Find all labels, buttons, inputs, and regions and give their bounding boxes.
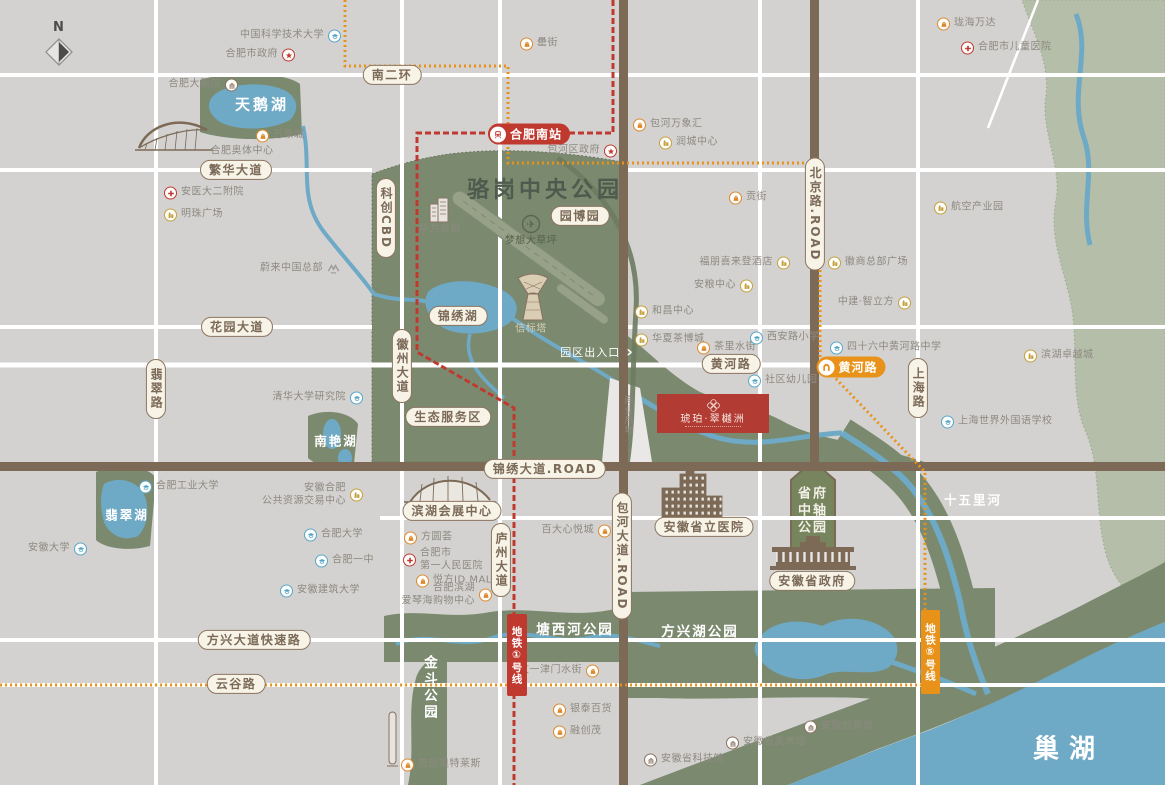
project-name: 琥珀·翠樾洲 bbox=[680, 414, 745, 425]
poi-item: 安徽合肥 公共资源交易中心 bbox=[262, 483, 363, 508]
landmark-label: 信标塔 bbox=[515, 320, 547, 335]
compass: N bbox=[42, 20, 76, 69]
poi-item: 合肥市儿童医院 bbox=[961, 42, 1052, 55]
road-label: 云谷路 bbox=[207, 674, 266, 694]
poi-item: 茶里水街 bbox=[697, 342, 756, 355]
poi-label: 安徽大学 bbox=[28, 543, 70, 556]
poi-item: 中国科学技术大学 bbox=[240, 30, 341, 43]
poi-label: 安徽省科技馆 bbox=[661, 754, 724, 767]
poi-label: 上海世界外国语学校 bbox=[958, 416, 1053, 429]
poi-label: 合肥工业大学 bbox=[156, 481, 219, 494]
poi-label: 航空产业园 bbox=[951, 202, 1004, 215]
mall-icon bbox=[586, 665, 599, 678]
landmark-label: 华为总部 bbox=[419, 220, 461, 235]
gov-icon bbox=[604, 145, 617, 158]
poi-label: 润城中心 bbox=[676, 137, 718, 150]
mall-icon bbox=[937, 18, 950, 31]
area-label: 方兴湖公园 bbox=[661, 620, 739, 640]
mall-icon bbox=[697, 342, 710, 355]
poi-item: 罍街 bbox=[520, 38, 558, 51]
poi-item: 航空产业园 bbox=[934, 202, 1004, 215]
poi-item: 安徽大学 bbox=[28, 543, 87, 556]
mall-icon bbox=[404, 532, 417, 545]
poi-item: 西安路小学 bbox=[750, 332, 820, 345]
poi-item: 合肥滨湖 爱琴海购物中心 bbox=[402, 583, 493, 608]
mall-icon bbox=[479, 589, 492, 602]
poi-item: 和昌中心 bbox=[635, 306, 694, 319]
building-icon bbox=[898, 297, 911, 310]
mall-icon bbox=[520, 38, 533, 51]
school-icon bbox=[304, 529, 317, 542]
school-icon bbox=[74, 543, 87, 556]
station-badge-hefei-south: 合肥南站 bbox=[488, 124, 570, 145]
mall-icon bbox=[256, 130, 269, 143]
hospital-icon bbox=[403, 554, 416, 567]
mall-icon bbox=[401, 759, 414, 772]
road-label: 方兴大道快速路 bbox=[198, 630, 311, 650]
building-icon bbox=[934, 202, 947, 215]
road-label: 园博园 bbox=[551, 206, 610, 226]
poi-item: 首创奥特莱斯 bbox=[401, 759, 481, 772]
station-label: 合肥南站 bbox=[510, 126, 562, 143]
commercial-plot-label: 商业用地 bbox=[622, 395, 635, 435]
poi-item: 清华大学研究院 bbox=[273, 392, 364, 405]
poi-item: 明珠广场 bbox=[164, 209, 223, 222]
poi-item: 合肥大剧院 bbox=[169, 79, 239, 92]
road-label: 黄河路 bbox=[702, 354, 761, 374]
poi-label: 合肥市 第一人民医院 bbox=[420, 548, 483, 573]
poi-label: 清华大学研究院 bbox=[273, 392, 347, 405]
road-label: 繁华大道 bbox=[200, 160, 272, 180]
metro-line1-band: 地铁①号线 bbox=[507, 614, 527, 696]
road-label: 上海路 bbox=[908, 358, 928, 418]
mall-icon bbox=[598, 525, 611, 538]
location-map: ✈ N 骆岗中央公园 园区出入口 › 商业用地 省府 中轴 公园 地铁①号线 地… bbox=[0, 0, 1165, 785]
culture-icon bbox=[804, 721, 817, 734]
poi-label: 蔚来中国总部 bbox=[260, 263, 323, 276]
poi-label: 合肥市政府 bbox=[226, 49, 279, 62]
school-icon bbox=[328, 30, 341, 43]
poi-item: 四十六中黄河路中学 bbox=[830, 342, 942, 355]
area-label: 十五里河 bbox=[944, 490, 1002, 509]
road-label: 花园大道 bbox=[201, 317, 273, 337]
school-icon bbox=[941, 416, 954, 429]
building-icon bbox=[1024, 350, 1037, 363]
building-icon bbox=[740, 280, 753, 293]
compass-north-label: N bbox=[53, 20, 65, 35]
school-icon bbox=[350, 392, 363, 405]
poi-item: 润城中心 bbox=[659, 137, 718, 150]
poi-item: 安医大二附院 bbox=[164, 187, 244, 200]
metro-icon bbox=[818, 359, 834, 375]
poi-item: 合肥一中 bbox=[315, 555, 374, 568]
poi-label: 四十六中黄河路中学 bbox=[847, 342, 942, 355]
poi-label: 社区幼儿园 bbox=[765, 375, 818, 388]
poi-item: 合肥工业大学 bbox=[139, 481, 219, 494]
area-label: 南艳湖 bbox=[314, 431, 358, 450]
school-icon bbox=[315, 555, 328, 568]
poi-label: 徽商总部广场 bbox=[845, 257, 908, 270]
poi-label: 福朋喜来登酒店 bbox=[700, 257, 774, 270]
project-badge: 琥珀·翠樾洲 bbox=[657, 394, 769, 433]
poi-label: 融创茂 bbox=[570, 726, 602, 739]
area-label: 塘西河公园 bbox=[536, 618, 614, 638]
road-label: 科创CBD bbox=[376, 178, 396, 258]
building-icon bbox=[828, 257, 841, 270]
gov-icon bbox=[282, 49, 295, 62]
poi-label: 中国科学技术大学 bbox=[240, 30, 324, 43]
school-icon bbox=[139, 481, 152, 494]
poi-item: 融创茂 bbox=[553, 726, 602, 739]
building-icon bbox=[164, 209, 177, 222]
poi-item: 徽商总部广场 bbox=[828, 257, 908, 270]
poi-item: 方圆荟 bbox=[404, 532, 453, 545]
building-icon bbox=[659, 137, 672, 150]
poi-item: 包河区政府 bbox=[548, 145, 618, 158]
road-label: 滨湖会展中心 bbox=[402, 501, 501, 521]
poi-label: 合肥市儿童医院 bbox=[978, 42, 1052, 55]
area-label: 翡翠湖 bbox=[105, 505, 149, 524]
road-label: 庐州大道 bbox=[491, 523, 511, 597]
school-icon bbox=[830, 342, 843, 355]
road-label: 安徽省立医院 bbox=[654, 517, 753, 537]
poi-label: 安徽建筑大学 bbox=[297, 585, 360, 598]
poi-label: 西安路小学 bbox=[767, 332, 820, 345]
station-badge-huanghe-road: 黄河路 bbox=[816, 357, 885, 378]
poi-item: 华夏茶博城 bbox=[635, 334, 705, 347]
culture-icon bbox=[225, 79, 238, 92]
school-icon bbox=[750, 332, 763, 345]
road-label: 南二环 bbox=[363, 65, 422, 85]
poi-label: 包河万象汇 bbox=[650, 119, 703, 132]
poi-item: 珑海万达 bbox=[937, 18, 996, 31]
compass-icon bbox=[42, 35, 76, 69]
poi-item: 社区幼儿园 bbox=[748, 375, 818, 388]
poi-label: 安粮中心 bbox=[694, 280, 736, 293]
area-label: 巢湖 bbox=[1033, 729, 1105, 766]
hospital-icon bbox=[961, 42, 974, 55]
poi-label: 安徽合肥 公共资源交易中心 bbox=[262, 483, 346, 508]
culture-icon bbox=[726, 737, 739, 750]
area-label: 天鹅湖 bbox=[235, 94, 289, 115]
poi-label: 合肥滨湖 爱琴海购物中心 bbox=[402, 583, 476, 608]
poi-label: 包河区政府 bbox=[548, 145, 601, 158]
school-icon bbox=[280, 585, 293, 598]
poi-item: 贡街 bbox=[729, 192, 767, 205]
poi-item: 安粮中心 bbox=[694, 280, 753, 293]
poi-label: 安徽省美术馆 bbox=[743, 737, 806, 750]
poi-label: 百大心悦城 bbox=[542, 525, 595, 538]
poi-item: 合肥大学 bbox=[304, 529, 363, 542]
road-label: 徽州大道 bbox=[392, 329, 412, 403]
poi-item: 银泰百货 bbox=[553, 704, 612, 717]
nio-icon bbox=[327, 263, 340, 276]
mall-icon bbox=[553, 704, 566, 717]
poi-item: 安徽建筑大学 bbox=[280, 585, 360, 598]
project-logo-icon bbox=[706, 398, 721, 413]
building-icon bbox=[350, 489, 363, 502]
station-label: 黄河路 bbox=[838, 359, 877, 376]
poi-item: 文一津门水街 bbox=[519, 665, 599, 678]
building-icon bbox=[635, 334, 648, 347]
poi-label: 安医大二附院 bbox=[181, 187, 244, 200]
poi-label: 万象城 bbox=[273, 130, 305, 143]
poi-label: 罍街 bbox=[537, 38, 558, 51]
arrow-right-icon: › bbox=[626, 344, 634, 360]
poi-item: 滨湖卓越城 bbox=[1024, 350, 1094, 363]
road-label: 翡翠路 bbox=[146, 359, 166, 419]
landmark-label: 合肥奥体中心 bbox=[211, 142, 274, 157]
poi-label: 安徽创新馆 bbox=[821, 721, 874, 734]
building-icon bbox=[777, 257, 790, 270]
mall-icon bbox=[553, 726, 566, 739]
poi-item: 安徽省科技馆 bbox=[644, 754, 724, 767]
school-icon bbox=[748, 375, 761, 388]
project-tagline-line bbox=[685, 426, 741, 429]
poi-item: 合肥市政府 bbox=[226, 49, 296, 62]
poi-label: 明珠广场 bbox=[181, 209, 223, 222]
poi-item: 万象城 bbox=[256, 130, 305, 143]
poi-label: 珑海万达 bbox=[954, 18, 996, 31]
mall-icon bbox=[633, 119, 646, 132]
poi-label: 文一津门水街 bbox=[519, 665, 582, 678]
park-title: 骆岗中央公园 bbox=[467, 172, 623, 204]
metro-line5-band: 地铁⑤号线 bbox=[921, 610, 940, 694]
poi-label: 首创奥特莱斯 bbox=[418, 759, 481, 772]
poi-label: 滨湖卓越城 bbox=[1041, 350, 1094, 363]
poi-label: 中建·智立方 bbox=[838, 297, 894, 310]
hospital-icon bbox=[164, 187, 177, 200]
poi-item: 上海世界外国语学校 bbox=[941, 416, 1053, 429]
poi-item: 福朋喜来登酒店 bbox=[700, 257, 791, 270]
poi-item: 合肥市 第一人民医院 bbox=[403, 548, 483, 573]
train-icon bbox=[490, 126, 506, 142]
poi-label: 银泰百货 bbox=[570, 704, 612, 717]
culture-icon bbox=[644, 754, 657, 767]
poi-label: 合肥大剧院 bbox=[169, 79, 222, 92]
axis-park-label: 省府 中轴 公园 bbox=[798, 487, 828, 538]
road-label: 锦绣大道.ROAD bbox=[484, 459, 606, 479]
area-label: 金斗公园 bbox=[419, 655, 439, 721]
park-entrance-label: 园区出入口 › bbox=[560, 344, 634, 360]
road-label: 包河大道.ROAD bbox=[612, 493, 632, 620]
poi-label: 贡街 bbox=[746, 192, 767, 205]
poi-label: 和昌中心 bbox=[652, 306, 694, 319]
landmark-label: 梦想大草坪 bbox=[505, 232, 558, 247]
poi-label: 方圆荟 bbox=[421, 532, 453, 545]
road-label: 北京路.ROAD bbox=[805, 158, 825, 271]
poi-label: 合肥大学 bbox=[321, 529, 363, 542]
poi-item: 包河万象汇 bbox=[633, 119, 703, 132]
poi-item: 安徽创新馆 bbox=[804, 721, 874, 734]
poi-label: 合肥一中 bbox=[332, 555, 374, 568]
poi-item: 百大心悦城 bbox=[542, 525, 612, 538]
building-icon bbox=[635, 306, 648, 319]
road-label: 安徽省政府 bbox=[769, 571, 855, 591]
road-label: 锦绣湖 bbox=[429, 306, 488, 326]
poi-item: 安徽省美术馆 bbox=[726, 737, 806, 750]
road-label: 生态服务区 bbox=[405, 407, 491, 427]
poi-item: 蔚来中国总部 bbox=[260, 263, 340, 276]
poi-item: 中建·智立方 bbox=[838, 297, 911, 310]
mall-icon bbox=[729, 192, 742, 205]
